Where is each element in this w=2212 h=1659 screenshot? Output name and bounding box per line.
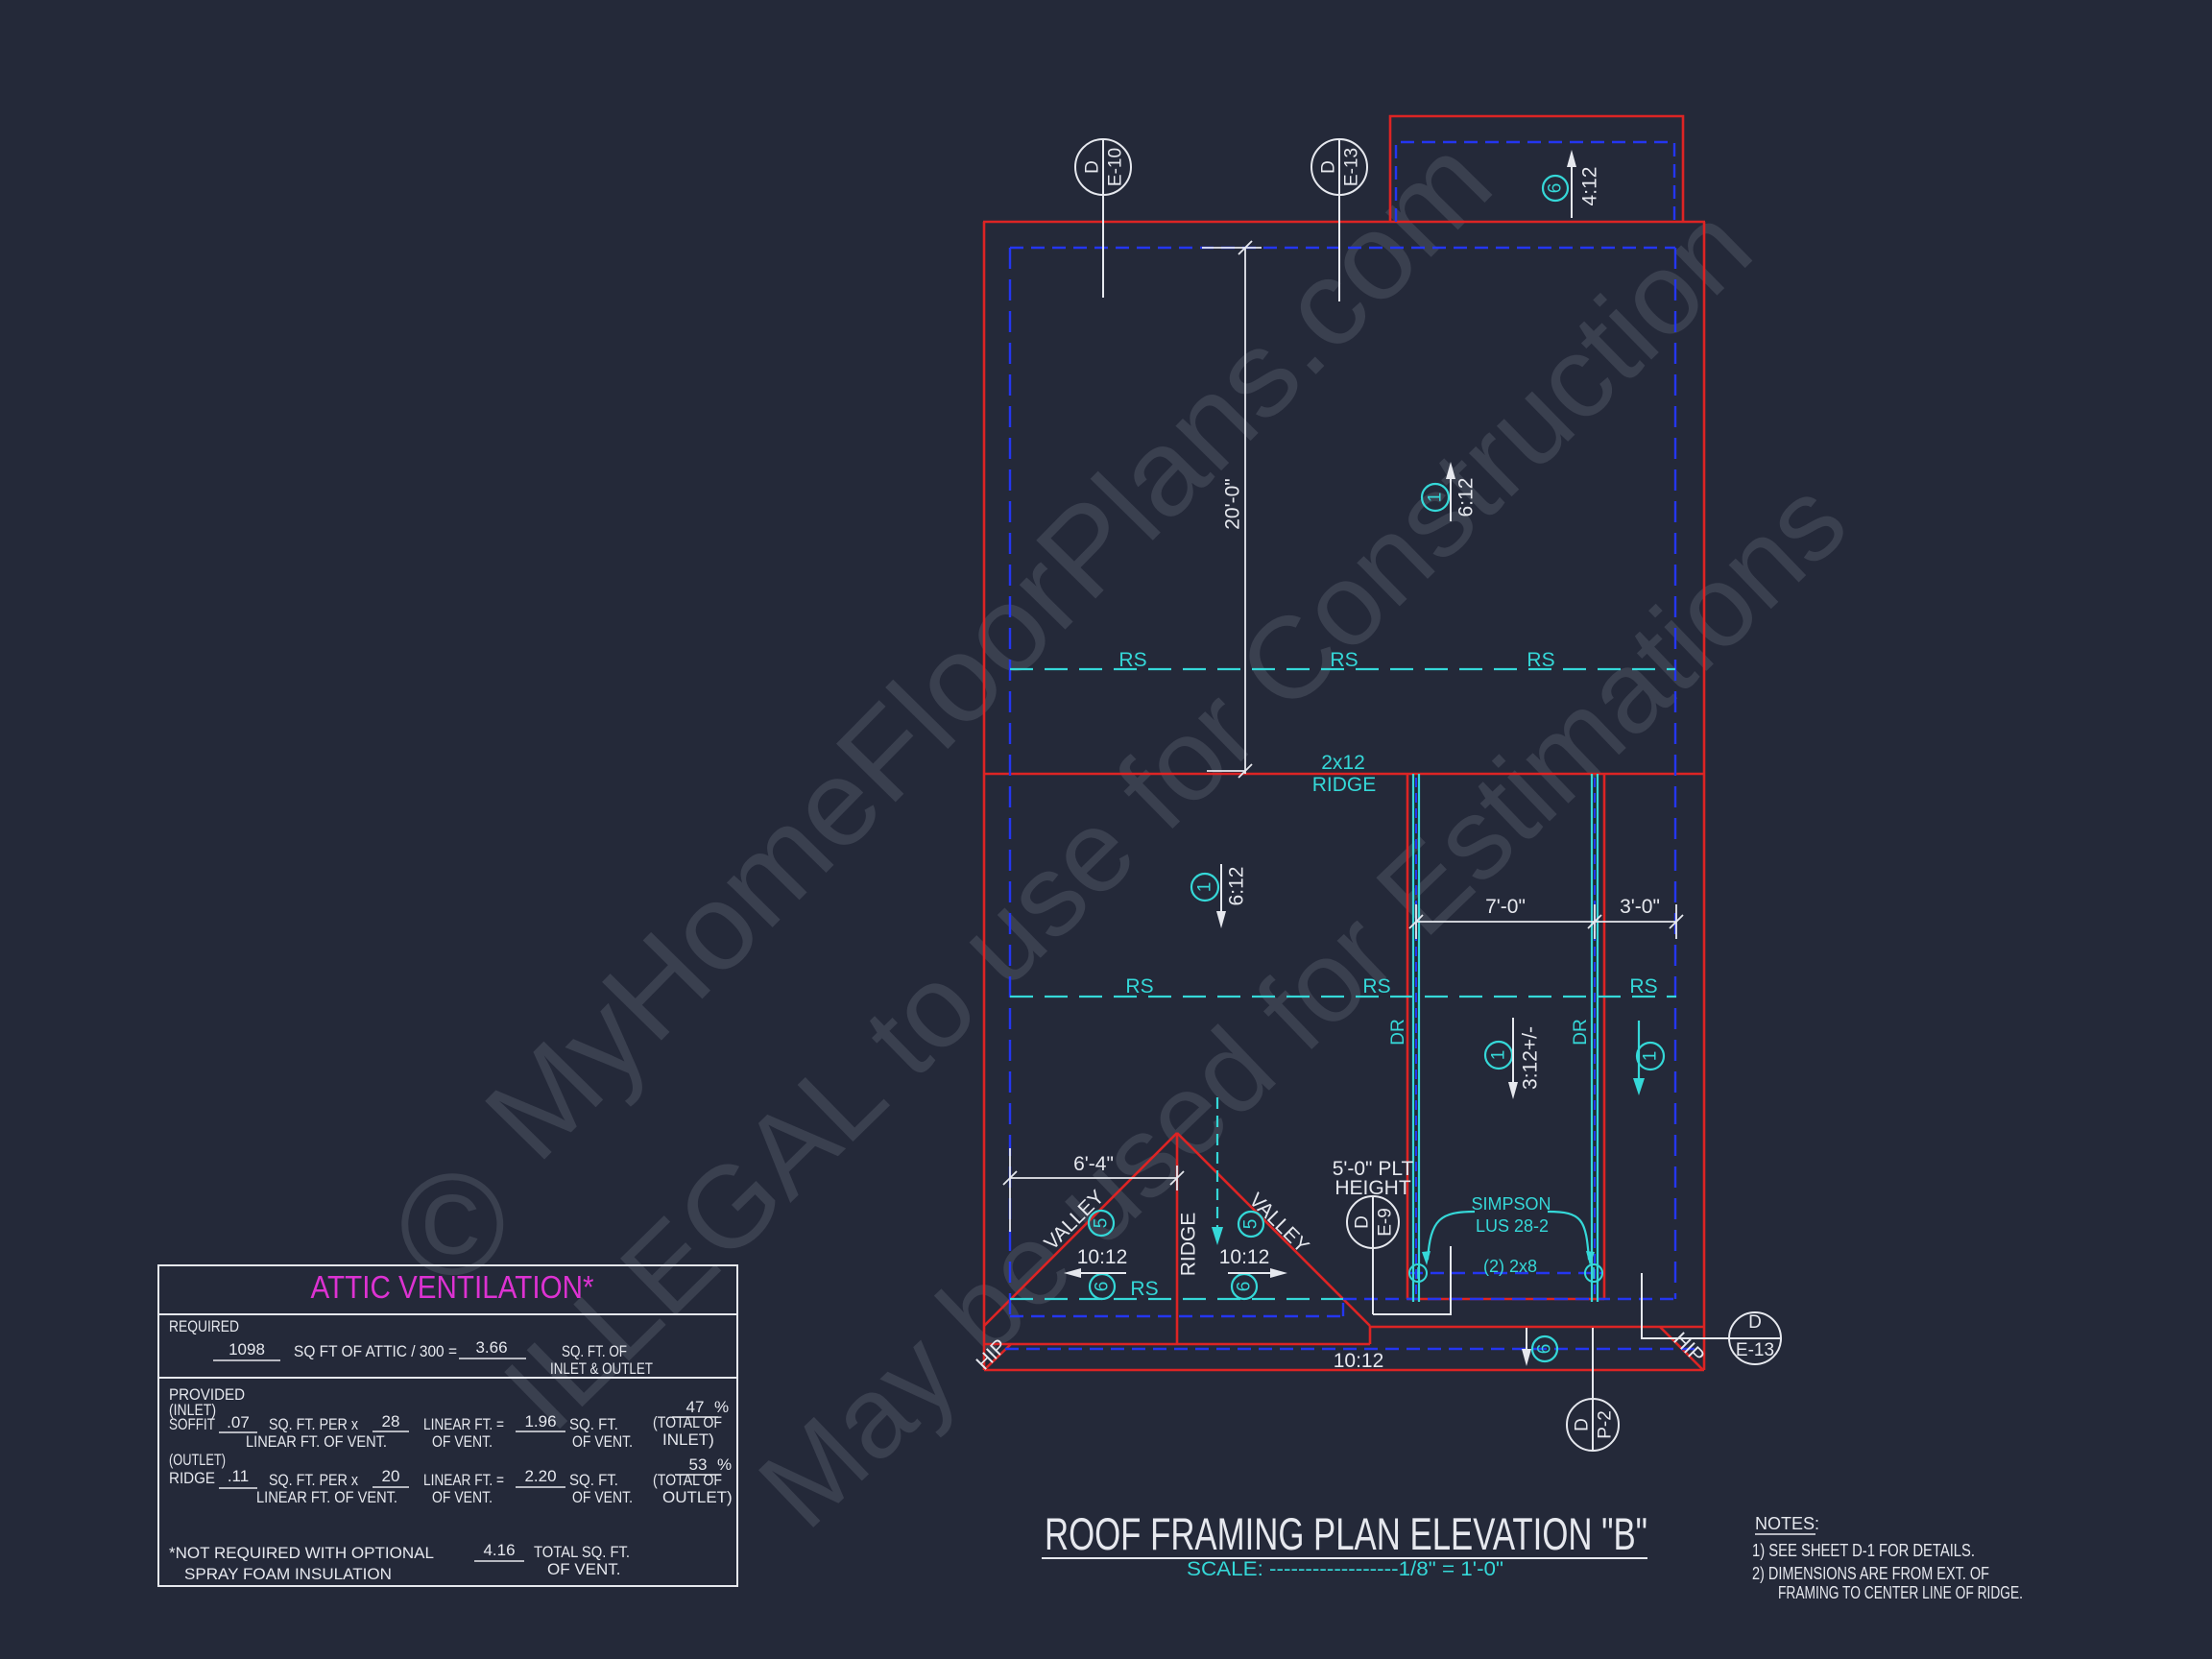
svg-text:6:12: 6:12 — [1455, 478, 1478, 517]
svg-text:1098: 1098 — [228, 1340, 265, 1358]
svg-text:OF VENT.: OF VENT. — [432, 1488, 493, 1506]
svg-text:OF VENT.: OF VENT. — [547, 1560, 621, 1578]
svg-text:1) SEE SHEET D-1 FOR DETAILS.: 1) SEE SHEET D-1 FOR DETAILS. — [1752, 1541, 1975, 1560]
svg-text:6: 6 — [1535, 1344, 1555, 1355]
svg-text:.07: .07 — [227, 1413, 250, 1431]
svg-text:6: 6 — [1546, 183, 1566, 194]
svg-text:E-13: E-13 — [1736, 1340, 1774, 1360]
svg-text:RS: RS — [1362, 975, 1390, 998]
svg-text:RS: RS — [1118, 649, 1146, 671]
svg-text:SQ. FT.: SQ. FT. — [569, 1415, 618, 1433]
svg-text:10:12: 10:12 — [1077, 1246, 1128, 1268]
svg-text:OF VENT.: OF VENT. — [432, 1432, 493, 1451]
svg-text:SQ. FT. OF: SQ. FT. OF — [562, 1342, 627, 1360]
svg-text:ATTIC VENTILATION*: ATTIC VENTILATION* — [311, 1269, 594, 1305]
svg-text:4:12: 4:12 — [1579, 167, 1601, 206]
svg-text:E-9: E-9 — [1376, 1208, 1396, 1237]
svg-text:2x12: 2x12 — [1321, 752, 1365, 774]
svg-text:SQ FT OF ATTIC / 300 =: SQ FT OF ATTIC / 300 = — [294, 1342, 457, 1360]
svg-text:1.96: 1.96 — [524, 1412, 556, 1431]
svg-text:OUTLET): OUTLET) — [662, 1488, 733, 1506]
svg-text:RIDGE: RIDGE — [1312, 774, 1377, 796]
svg-text:1: 1 — [1426, 493, 1446, 503]
svg-text:6: 6 — [1093, 1282, 1113, 1292]
svg-text:(OUTLET): (OUTLET) — [169, 1451, 226, 1469]
svg-text:10:12: 10:12 — [1334, 1350, 1384, 1372]
svg-text:LUS 28-2: LUS 28-2 — [1476, 1216, 1549, 1236]
svg-text:4.16: 4.16 — [483, 1541, 515, 1559]
svg-text:(2) 2x8: (2) 2x8 — [1483, 1257, 1537, 1276]
svg-text:D: D — [1353, 1215, 1373, 1229]
svg-text:REQUIRED: REQUIRED — [169, 1317, 239, 1335]
svg-text:LINEAR FT. =: LINEAR FT. = — [423, 1415, 504, 1433]
svg-text:28: 28 — [382, 1412, 400, 1431]
svg-text:.11: .11 — [228, 1467, 249, 1485]
svg-text:10:12: 10:12 — [1219, 1246, 1270, 1268]
svg-text:SCALE: ------------------1/8": SCALE: ------------------1/8" = 1'-0" — [1187, 1558, 1503, 1580]
svg-text:OF VENT.: OF VENT. — [572, 1488, 633, 1506]
svg-text:RIDGE: RIDGE — [169, 1469, 215, 1487]
svg-text:1: 1 — [1195, 882, 1215, 893]
svg-text:3.66: 3.66 — [475, 1338, 507, 1357]
svg-text:D: D — [1083, 160, 1103, 174]
svg-text:SQ. FT. PER x: SQ. FT. PER x — [269, 1415, 358, 1433]
svg-text:OF VENT.: OF VENT. — [572, 1432, 633, 1451]
svg-text:RS: RS — [1330, 649, 1358, 671]
svg-text:SIMPSON: SIMPSON — [1471, 1194, 1551, 1214]
svg-text:E-10: E-10 — [1106, 148, 1126, 186]
svg-text:RS: RS — [1130, 1278, 1158, 1300]
svg-text:SOFFIT: SOFFIT — [169, 1415, 215, 1433]
svg-text:6: 6 — [1235, 1282, 1255, 1292]
svg-text:2) DIMENSIONS ARE FROM EXT. O: 2) DIMENSIONS ARE FROM EXT. OF — [1752, 1564, 1989, 1583]
svg-text:SPRAY FOAM INSULATION: SPRAY FOAM INSULATION — [184, 1565, 392, 1583]
svg-text:INLET & OUTLET: INLET & OUTLET — [550, 1359, 653, 1378]
svg-text:RIDGE: RIDGE — [1178, 1213, 1200, 1277]
svg-text:DR: DR — [1571, 1019, 1591, 1045]
svg-text:LINEAR FT. OF VENT.: LINEAR FT. OF VENT. — [246, 1432, 387, 1451]
svg-text:SQ. FT. PER x: SQ. FT. PER x — [269, 1471, 358, 1489]
svg-text:3:12+/-: 3:12+/- — [1520, 1026, 1542, 1090]
svg-text:RS: RS — [1629, 975, 1657, 998]
svg-text:2.20: 2.20 — [524, 1467, 556, 1485]
svg-text:5: 5 — [1092, 1218, 1112, 1229]
svg-text:20'-0": 20'-0" — [1222, 478, 1244, 530]
svg-text:LINEAR FT. =: LINEAR FT. = — [423, 1471, 504, 1489]
svg-text:NOTES:: NOTES: — [1755, 1514, 1819, 1533]
svg-text:*NOT REQUIRED WITH OPTIONAL: *NOT REQUIRED WITH OPTIONAL — [169, 1544, 434, 1562]
svg-text:E-13: E-13 — [1342, 148, 1362, 186]
svg-text:1: 1 — [1641, 1051, 1661, 1062]
svg-text:D: D — [1748, 1312, 1762, 1333]
svg-text:SQ. FT.: SQ. FT. — [569, 1471, 618, 1489]
svg-text:(TOTAL OF: (TOTAL OF — [653, 1471, 722, 1489]
svg-text:P-2: P-2 — [1596, 1410, 1616, 1439]
svg-text:6'-4": 6'-4" — [1073, 1153, 1114, 1175]
svg-text:RS: RS — [1527, 649, 1554, 671]
svg-text:FRAMING TO CENTER LINE OF RIDG: FRAMING TO CENTER LINE OF RIDGE. — [1778, 1583, 2023, 1602]
svg-text:7'-0": 7'-0" — [1485, 896, 1526, 918]
svg-text:20: 20 — [382, 1467, 400, 1485]
svg-text:5: 5 — [1241, 1219, 1262, 1230]
svg-text:TOTAL SQ. FT.: TOTAL SQ. FT. — [534, 1543, 630, 1561]
svg-text:(TOTAL OF: (TOTAL OF — [653, 1413, 722, 1431]
svg-text:6:12: 6:12 — [1226, 867, 1248, 906]
svg-text:LINEAR FT. OF VENT.: LINEAR FT. OF VENT. — [256, 1488, 397, 1506]
svg-text:RS: RS — [1125, 975, 1153, 998]
svg-text:ROOF FRAMING PLAN ELEVATION "B: ROOF FRAMING PLAN ELEVATION "B" — [1045, 1508, 1647, 1559]
svg-text:DR: DR — [1388, 1019, 1408, 1045]
svg-text:3'-0": 3'-0" — [1620, 896, 1660, 918]
svg-text:1: 1 — [1489, 1050, 1509, 1061]
svg-text:D: D — [1319, 160, 1339, 174]
svg-text:D: D — [1573, 1418, 1593, 1431]
svg-text:INLET): INLET) — [662, 1431, 714, 1449]
